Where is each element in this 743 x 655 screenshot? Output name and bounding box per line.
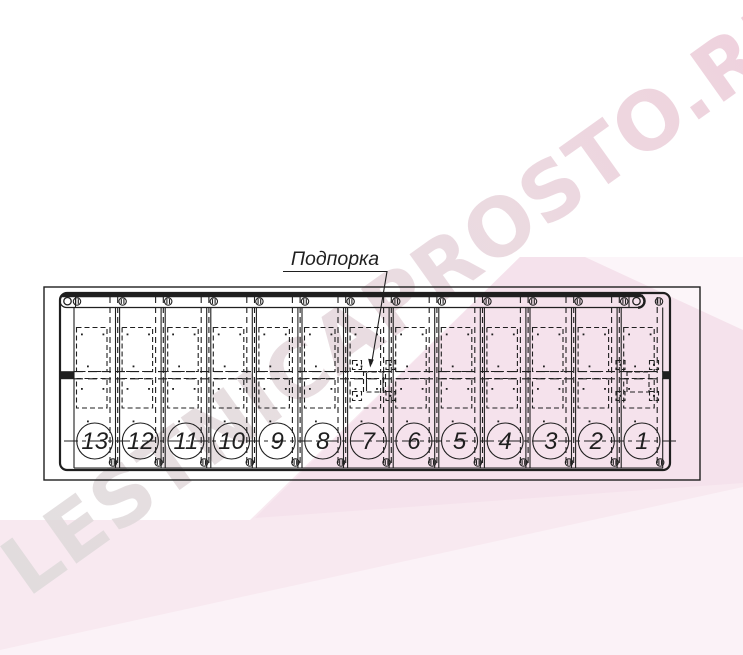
step-panel: 12 [119,297,163,468]
step-number: 13 [81,428,108,455]
screw-dot [172,334,174,336]
screw-dot [218,334,220,336]
screw-dot [361,421,363,423]
screw-dot [269,421,271,423]
screw-dot [224,366,226,368]
screw-dot [513,388,515,390]
steps-layer: 13121110987654321 [73,297,664,468]
page: LESTNICAPROSTO.RU 13121110987654321 [0,0,743,655]
screw-dot [263,334,265,336]
stringer-right-end [663,371,670,379]
screw-dot [103,388,105,390]
screw-dot [103,334,105,336]
bolt-icon [438,298,445,305]
step-panel: 13 [73,297,117,468]
screw-dot [634,421,636,423]
staircase-drawing: 13121110987654321 [0,0,743,655]
step-panel: 7 [347,297,391,468]
screw-dot [178,366,180,368]
screw-dot [559,388,561,390]
bolt-icon [119,298,126,305]
step-panel: 11 [165,297,209,468]
screw-dot [467,388,469,390]
hidden-plate-lower [213,379,244,409]
screw-dot [269,366,271,368]
screw-dot [491,334,493,336]
step-number: 8 [316,428,330,455]
screw-dot [390,395,392,397]
bolt-icon [655,298,662,305]
screw-dot [133,366,135,368]
step-number: 2 [589,428,603,455]
screw-dot [628,334,630,336]
step-number: 7 [362,428,377,455]
screw-dot [653,364,655,366]
screw-dot [218,388,220,390]
step-panel: 3 [529,297,573,468]
hidden-plate-lower [396,379,427,409]
screw-dot [497,421,499,423]
screw-dot [87,421,89,423]
screw-dot [390,364,392,366]
screw-dot [620,395,622,397]
screw-dot [650,388,652,390]
screw-dot [356,395,358,397]
handrail-right-cap-circle [633,298,640,305]
screw-dot [446,388,448,390]
step-panel: 8 [301,297,345,468]
screw-dot [620,364,622,366]
screw-dot [194,334,196,336]
screw-dot [628,388,630,390]
hidden-plate-lower [487,379,518,409]
screw-dot [224,421,226,423]
step-number: 10 [218,428,245,455]
screw-dot [400,388,402,390]
hidden-plate-lower [305,379,336,409]
bolt-icon [256,298,263,305]
screw-dot [178,421,180,423]
screw-dot [239,334,241,336]
screw-dot [127,334,129,336]
bolt-icon [73,298,80,305]
screw-dot [331,388,333,390]
bolt-icon [210,298,217,305]
step-panel: 9 [256,297,300,468]
step-panel: 4 [484,297,528,468]
screw-dot [315,366,317,368]
screw-dot [406,421,408,423]
screw-dot [148,388,150,390]
support-label-leader [283,272,387,365]
screw-dot [604,388,606,390]
step-number: 6 [407,428,421,455]
step-number: 5 [453,428,467,455]
support-leader-arrow [368,359,374,368]
step-number: 3 [544,428,558,455]
bolt-icon [529,298,536,305]
hidden-plate-lower [168,379,199,409]
hidden-plate-lower [259,379,290,409]
screw-dot [133,421,135,423]
screw-dot [513,334,515,336]
screw-dot [634,366,636,368]
screw-dot [583,334,585,336]
screw-dot [81,388,83,390]
screw-dot [356,364,358,366]
screw-dot [355,388,357,390]
screw-dot [263,388,265,390]
support-label: Подпорка [291,248,379,270]
screw-dot [452,366,454,368]
step-number: 9 [270,428,283,455]
step-panel: 5 [438,297,482,468]
screw-dot [604,334,606,336]
screw-dot [543,366,545,368]
screw-dot [309,334,311,336]
screw-dot [467,334,469,336]
hidden-plate-lower [533,379,564,409]
screw-dot [452,421,454,423]
support-detail-right [616,361,659,401]
hidden-plate-lower [122,379,153,409]
screw-dot [285,388,287,390]
step-panel: 2 [575,297,619,468]
screw-dot [315,421,317,423]
step-number: 1 [635,428,648,455]
screw-dot [543,421,545,423]
bolt-icon [165,298,172,305]
bolt-icon [301,298,308,305]
screw-dot [422,334,424,336]
hidden-plate-lower [441,379,472,409]
hidden-plate-lower [578,379,609,409]
screw-dot [331,334,333,336]
stringer-left-end [61,371,74,379]
screw-dot [87,366,89,368]
hidden-plate-lower [350,379,381,409]
screw-dot [239,388,241,390]
screw-dot [422,388,424,390]
screw-dot [491,388,493,390]
bolt-icon [347,298,354,305]
bolt-icon [621,298,628,305]
screw-dot [355,334,357,336]
screw-dot [589,366,591,368]
handrail-left-cap-circle [64,298,71,305]
bolt-icon [484,298,491,305]
screw-dot [361,366,363,368]
screw-dot [400,334,402,336]
screw-dot [309,388,311,390]
screw-dot [127,388,129,390]
screw-dot [446,334,448,336]
step-panel: 6 [393,297,437,468]
screw-dot [650,334,652,336]
screw-dot [406,366,408,368]
screw-dot [81,334,83,336]
screw-dot [172,388,174,390]
screw-dot [653,395,655,397]
step-panel: 10 [210,297,254,468]
screw-dot [559,334,561,336]
screw-dot [285,334,287,336]
screw-dot [583,388,585,390]
step-number: 4 [498,428,511,455]
step-number: 12 [127,428,154,455]
step-number: 11 [173,428,198,455]
screw-dot [194,388,196,390]
bolt-icon [393,298,400,305]
support-post-outline [627,372,649,392]
screw-dot [589,421,591,423]
hidden-plate-lower [77,379,108,409]
screw-dot [148,334,150,336]
screw-dot [497,366,499,368]
bolt-icon [575,298,582,305]
screw-dot [376,388,378,390]
screw-dot [537,334,539,336]
screw-dot [537,388,539,390]
handrail [60,295,645,308]
